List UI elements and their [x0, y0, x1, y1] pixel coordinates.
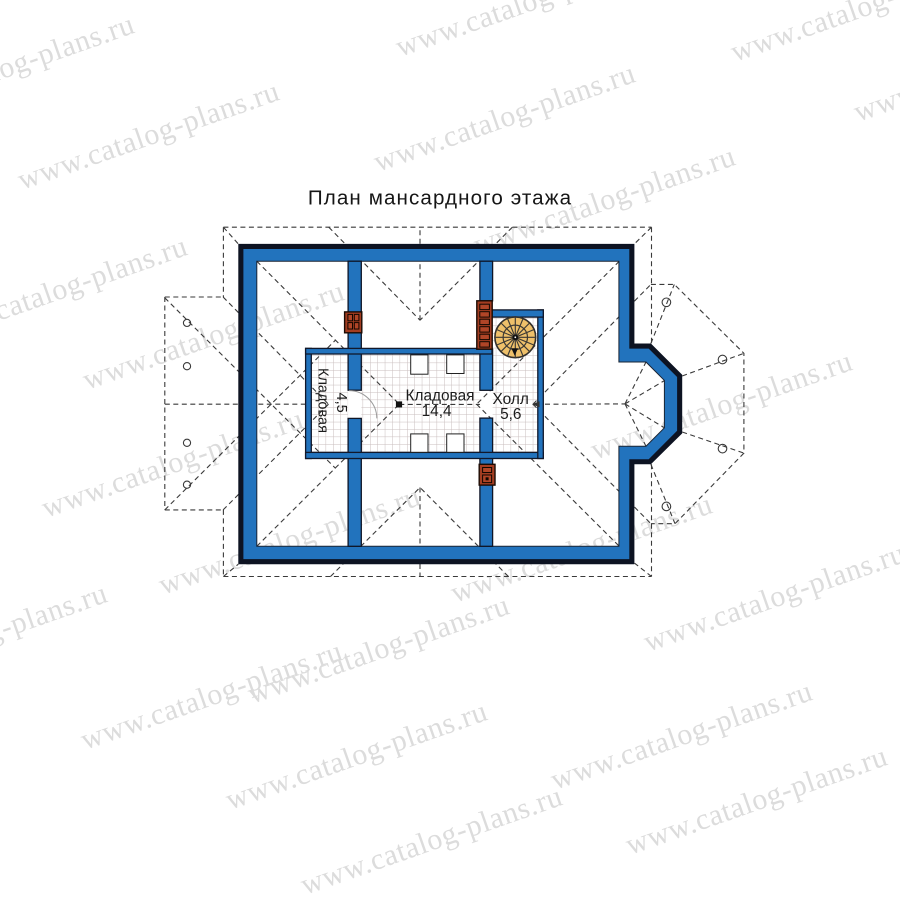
- svg-text:14,4: 14,4: [422, 403, 452, 420]
- svg-text:5,6: 5,6: [500, 406, 521, 423]
- svg-text:Кладовая: Кладовая: [406, 387, 475, 404]
- svg-text:Кладовая: Кладовая: [314, 368, 330, 433]
- svg-text:План мансардного этажа: План мансардного этажа: [308, 187, 572, 210]
- svg-text:4,5: 4,5: [333, 393, 349, 413]
